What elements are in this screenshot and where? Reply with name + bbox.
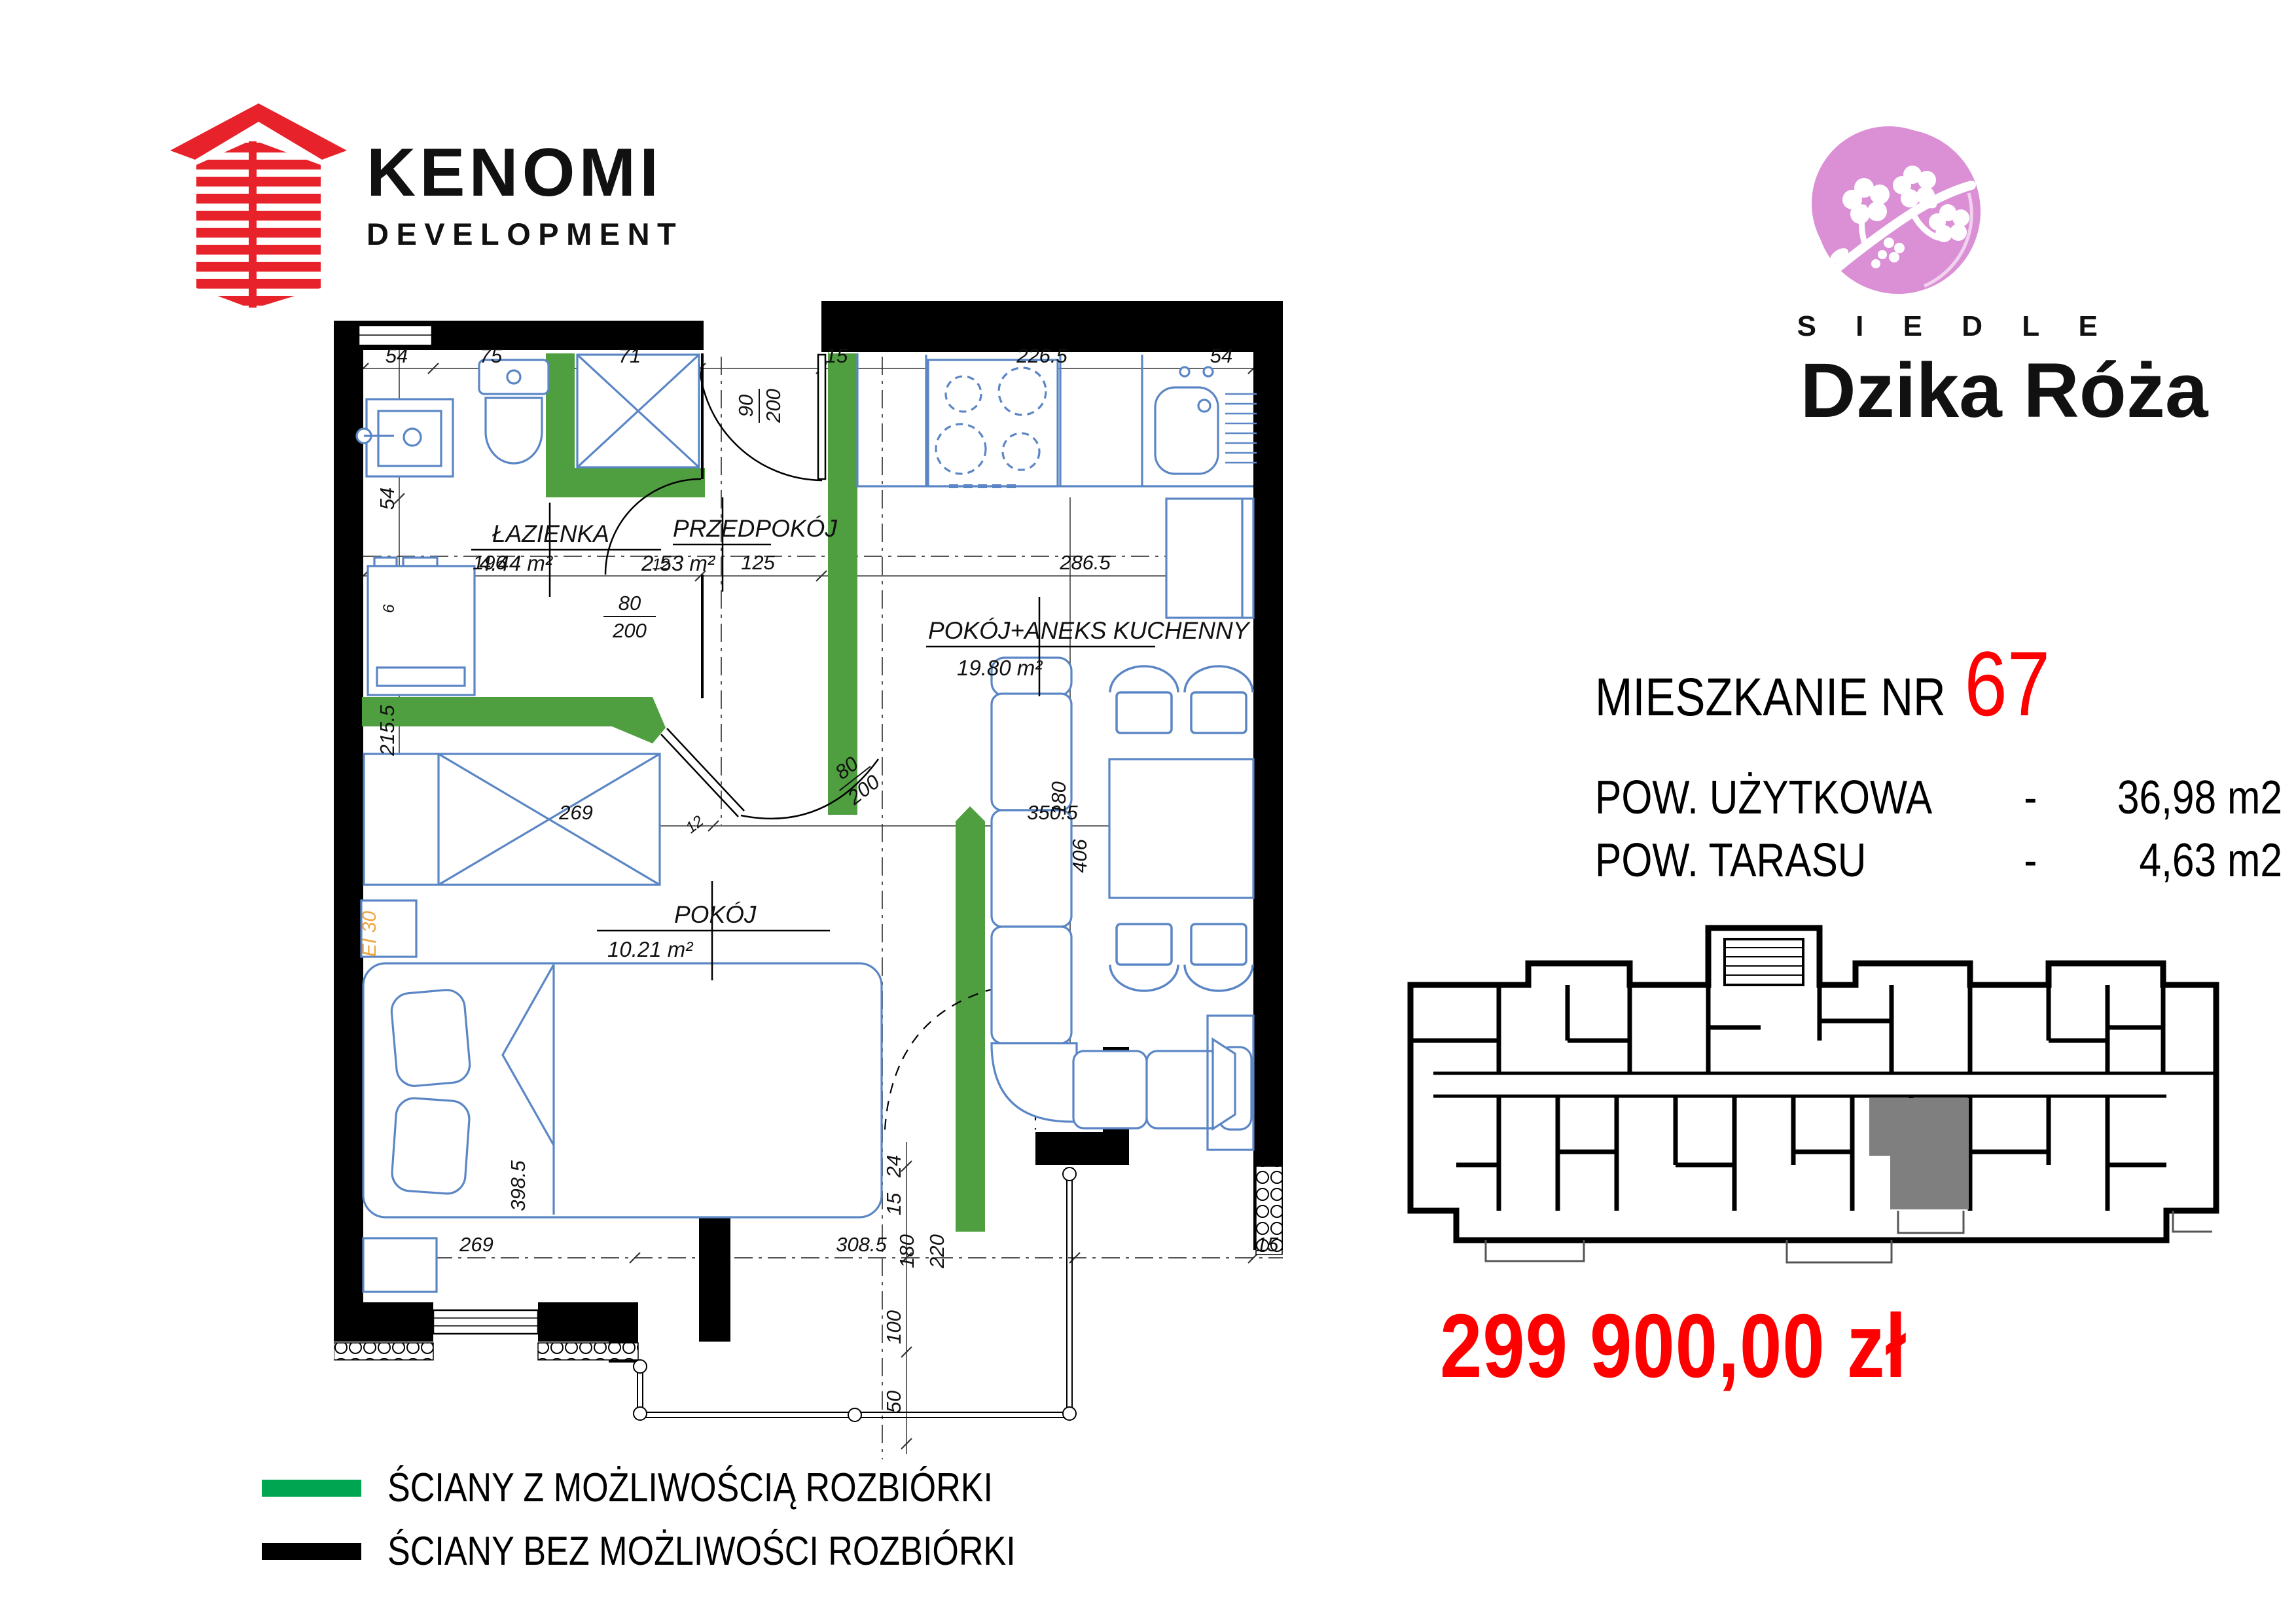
developer-subtitle: DEVELOPMENT [367,216,683,252]
svg-text:269: 269 [459,1233,493,1256]
svg-text:215.5: 215.5 [376,704,399,756]
svg-text:54: 54 [386,344,408,367]
building-outline [1410,928,2216,1240]
svg-text:24: 24 [882,1155,905,1178]
estate-name: Dzika Róża [1801,348,2209,434]
bedroom-window [433,1310,538,1334]
rose-circle-icon [1803,126,1981,294]
door-gap-dim: 12 [683,812,708,837]
legend-black-swatch [262,1543,361,1560]
nightstand-icon [363,1238,437,1292]
price: 299 900,00 zł [1440,1294,1907,1399]
building-icon [170,103,347,308]
svg-text:15: 15 [882,1192,905,1215]
bedroom-label: POKÓJ [674,901,757,928]
apartment-title-label: MIESZKANIE NR [1595,667,1946,728]
usable-area-value: 36,98 m2 [2062,771,2282,825]
washbasin-icon [357,399,453,476]
bedroom-area: 10.21 m² [607,937,693,961]
legend-removable-row: ŚCIANY Z MOŻLIWOŚCIĄ ROZBIÓRKI [262,1465,1136,1511]
legend-fixed-label: ŚCIANY BEZ MOŻLIWOŚCI ROZBIÓRKI [387,1528,1016,1575]
svg-text:15: 15 [825,344,848,367]
svg-text:100: 100 [882,1310,905,1344]
svg-text:180: 180 [895,1234,918,1268]
usable-area-label: POW. UŻYTKOWA [1595,771,2024,825]
building-floor-overview [1394,910,2232,1276]
toilet-icon [479,360,548,463]
svg-text:308.5: 308.5 [836,1233,887,1256]
svg-text:6: 6 [380,604,398,613]
terrace-area-dash: - [2024,834,2062,887]
svg-text:54: 54 [376,488,399,510]
bedroom-door-leaf [661,728,744,817]
bathroom-label: ŁAZIENKA [492,520,609,547]
svg-text:15: 15 [1256,1233,1279,1256]
legend: ŚCIANY Z MOŻLIWOŚCIĄ ROZBIÓRKI ŚCIANY BE… [262,1465,1136,1592]
apartment-areas: POW. UŻYTKOWA - 36,98 m2 POW. TARASU - 4… [1595,771,2282,897]
svg-text:406: 406 [1068,838,1091,872]
svg-text:286.5: 286.5 [1059,551,1111,574]
svg-text:226.5: 226.5 [1016,344,1067,367]
svg-text:180: 180 [1047,781,1070,815]
svg-text:71: 71 [619,344,641,367]
svg-text:196: 196 [473,551,507,574]
estate-label: O S I E D L E [1761,310,2113,342]
fire-rating-label: EI 30 [359,911,380,957]
svg-text:398.5: 398.5 [507,1160,529,1211]
estate-logo: O S I E D L E Dzika Róża [1761,115,2232,540]
bathroom-door-size: 80 200 [603,592,656,642]
svg-text:90: 90 [734,395,757,417]
svg-text:125: 125 [741,551,775,574]
sink-icon [1155,367,1257,474]
terrace-area-value: 4,63 m2 [2062,834,2282,887]
dining-table-icon [1109,759,1253,898]
kenomi-logo-text: KENOMI DEVELOPMENT [367,134,683,252]
legend-removable-label: ŚCIANY Z MOŻLIWOŚCIĄ ROZBIÓRKI [387,1465,993,1511]
wardrobe-icon [364,754,660,885]
legend-fixed-row: ŚCIANY BEZ MOŻLIWOŚCI ROZBIÓRKI [262,1528,1136,1575]
svg-text:54: 54 [1210,344,1232,367]
washing-machine-icon [368,558,475,695]
svg-text:80: 80 [619,592,641,615]
living-label: POKÓJ+ANEKS KUCHENNY [928,617,1251,644]
usable-area-row: POW. UŻYTKOWA - 36,98 m2 [1595,771,2282,825]
svg-text:269: 269 [558,801,593,824]
svg-text:12: 12 [653,556,670,573]
usable-area-dash: - [2024,771,2062,825]
svg-text:200: 200 [612,619,647,642]
fridge-cabinet-icon [1166,499,1253,618]
floor-plan: ŁAZIENKA 4.44 m² PRZEDPOKÓJ 2.53 m² POKÓ… [334,301,1283,1466]
hall-label: PRZEDPOKÓJ [673,515,837,542]
legend-green-swatch [262,1480,361,1497]
svg-text:220: 220 [925,1234,948,1269]
stove-icon [928,360,1058,486]
terrace-area-row: POW. TARASU - 4,63 m2 [1595,834,2282,887]
svg-text:50: 50 [882,1391,905,1413]
kenomi-logo-icon [157,92,360,321]
svg-text:75: 75 [480,344,503,367]
bathroom-window [359,325,432,346]
apartment-number: 67 [1964,638,2050,730]
terrace-area-label: POW. TARASU [1595,834,2024,887]
entrance-door-size: 90 200 [734,389,785,423]
flyer-page: KENOMI DEVELOPMENT [0,0,2296,1623]
entrance-door-leaf [818,355,825,479]
bed-icon [363,963,882,1217]
developer-name: KENOMI [367,134,683,212]
living-area: 19.80 m² [957,656,1043,680]
shower-icon [577,355,699,467]
apartment-title: MIESZKANIE NR 67 [1595,638,2050,730]
svg-text:200: 200 [762,389,785,423]
entrance-door-arc [699,356,822,480]
